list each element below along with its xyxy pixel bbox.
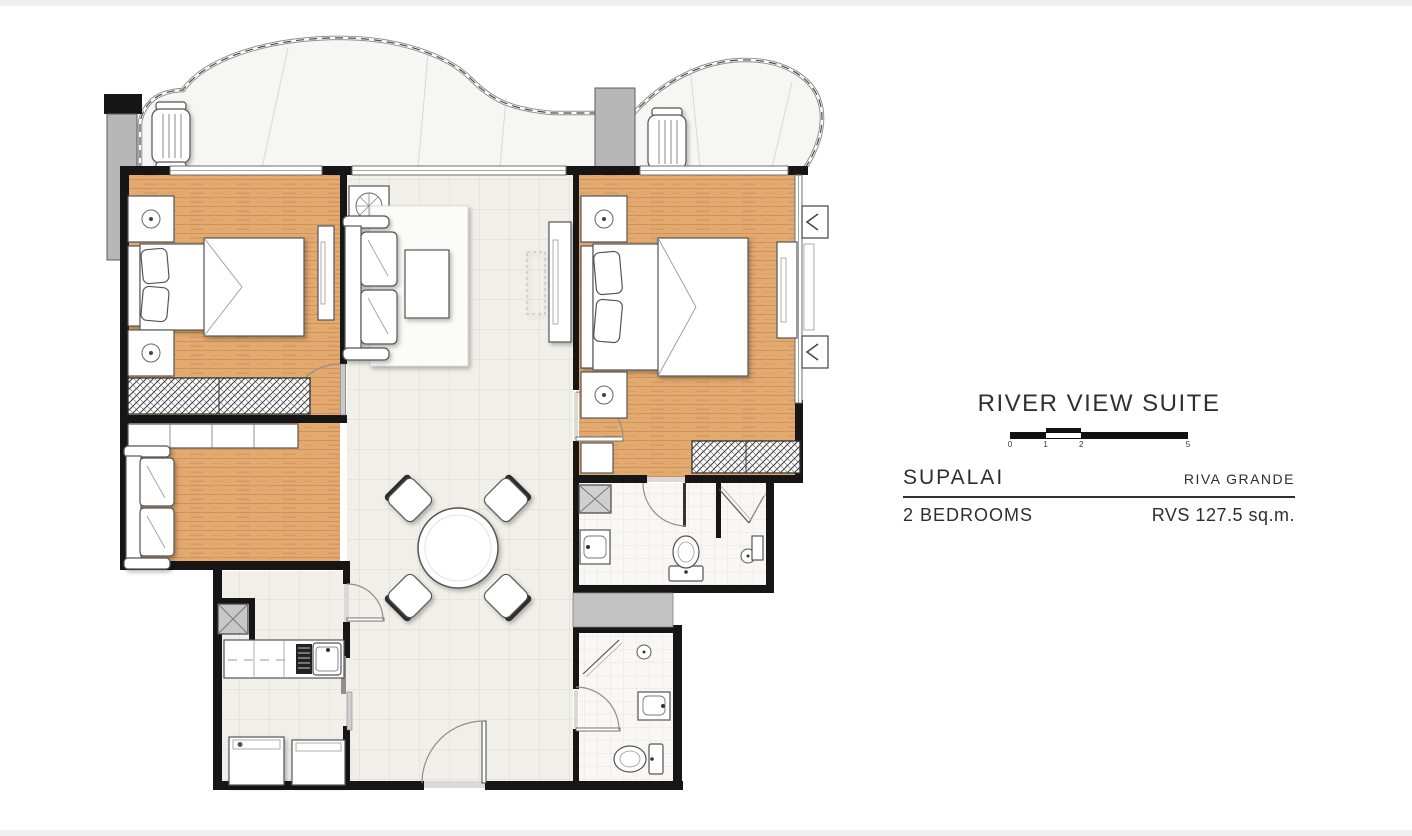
- appliance: [292, 740, 345, 785]
- cabinet: [581, 443, 613, 473]
- window: [352, 166, 566, 175]
- washer: [229, 737, 284, 785]
- lounge-chair: [152, 102, 190, 170]
- window: [170, 166, 322, 175]
- balcony-floor: [140, 38, 822, 171]
- tv-console: [777, 242, 797, 338]
- unit-type: 2 BEDROOMS: [903, 505, 1033, 526]
- kitchen-sink: [296, 643, 341, 675]
- scale-segment: [1081, 433, 1187, 438]
- wardrobe: [692, 441, 800, 473]
- service-ledge: [573, 593, 673, 627]
- planter-strip: [804, 244, 814, 330]
- scale-tick-label: 2: [1079, 440, 1083, 449]
- coffee-table: [405, 250, 449, 318]
- kitchen-counter: [224, 640, 344, 678]
- toilet-icon: [614, 744, 663, 774]
- shaft: [218, 604, 248, 634]
- scale-ticks: 0 1 2 5: [1010, 440, 1188, 450]
- wardrobe: [128, 378, 310, 414]
- title-block: RIVER VIEW SUITE 0 1 2 5 SUPALAI RIVA GR…: [903, 390, 1295, 526]
- nightstand: [128, 196, 174, 242]
- dining-table: [418, 508, 498, 588]
- sink-icon: [638, 692, 670, 720]
- scale-bar-main: [1010, 432, 1188, 439]
- nightstand: [581, 372, 627, 418]
- project-name: RIVA GRANDE: [1184, 471, 1295, 487]
- scale-tick-label: 0: [1008, 440, 1012, 449]
- unit-area: RVS 127.5 sq.m.: [1152, 505, 1295, 526]
- bed-icon: [128, 238, 304, 336]
- title-divider: [903, 496, 1295, 498]
- ac-louver: [802, 336, 828, 368]
- plan-title: RIVER VIEW SUITE: [903, 390, 1295, 418]
- scale-segment: [1011, 433, 1046, 438]
- window: [640, 166, 788, 175]
- nightstand: [581, 196, 627, 242]
- scale-tick-label: 1: [1043, 440, 1047, 449]
- floor-plan-page: RIVER VIEW SUITE 0 1 2 5 SUPALAI RIVA GR…: [0, 0, 1412, 836]
- tv-console: [318, 226, 334, 320]
- scale-tick-label: 5: [1186, 440, 1190, 449]
- scale-segment: [1046, 433, 1081, 438]
- sofa-icon: [124, 446, 174, 569]
- ac-louver: [802, 206, 828, 238]
- nightstand: [128, 330, 174, 376]
- shaft: [579, 485, 611, 513]
- bed-icon: [581, 238, 748, 376]
- corner-wall-block: [104, 94, 142, 114]
- brand-name: SUPALAI: [903, 466, 1004, 490]
- sink-icon: [580, 530, 610, 564]
- scale-bar: 0 1 2 5: [1010, 428, 1188, 450]
- column: [595, 88, 635, 172]
- cabinet-row: [128, 424, 298, 448]
